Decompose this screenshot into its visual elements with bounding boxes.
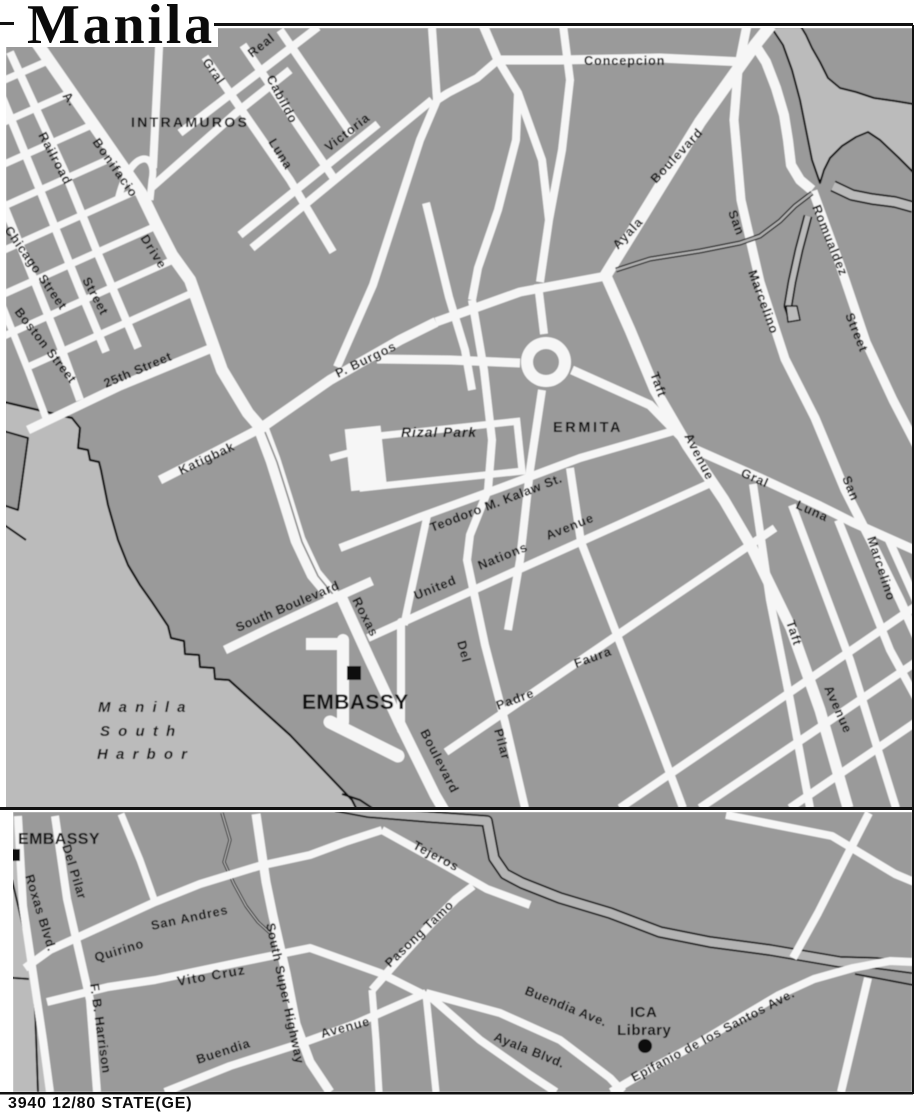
svg-text:ICA: ICA: [630, 1004, 657, 1021]
svg-text:ERMITA: ERMITA: [553, 420, 623, 436]
svg-text:EMBASSY: EMBASSY: [302, 691, 409, 714]
svg-text:Library: Library: [617, 1022, 672, 1039]
svg-text:S o u t h: S o u t h: [100, 723, 177, 740]
svg-text:3940 12/80 STATE(GE): 3940 12/80 STATE(GE): [8, 1095, 192, 1112]
svg-text:Rizal Park: Rizal Park: [401, 424, 477, 440]
svg-text:H a r b o r: H a r b o r: [97, 746, 189, 763]
svg-text:Manila: Manila: [27, 0, 215, 56]
svg-text:Concepcion: Concepcion: [584, 53, 665, 68]
svg-text:INTRAMUROS: INTRAMUROS: [131, 115, 249, 131]
svg-text:EMBASSY: EMBASSY: [18, 831, 100, 848]
svg-text:M a n i l a: M a n i l a: [98, 699, 188, 716]
